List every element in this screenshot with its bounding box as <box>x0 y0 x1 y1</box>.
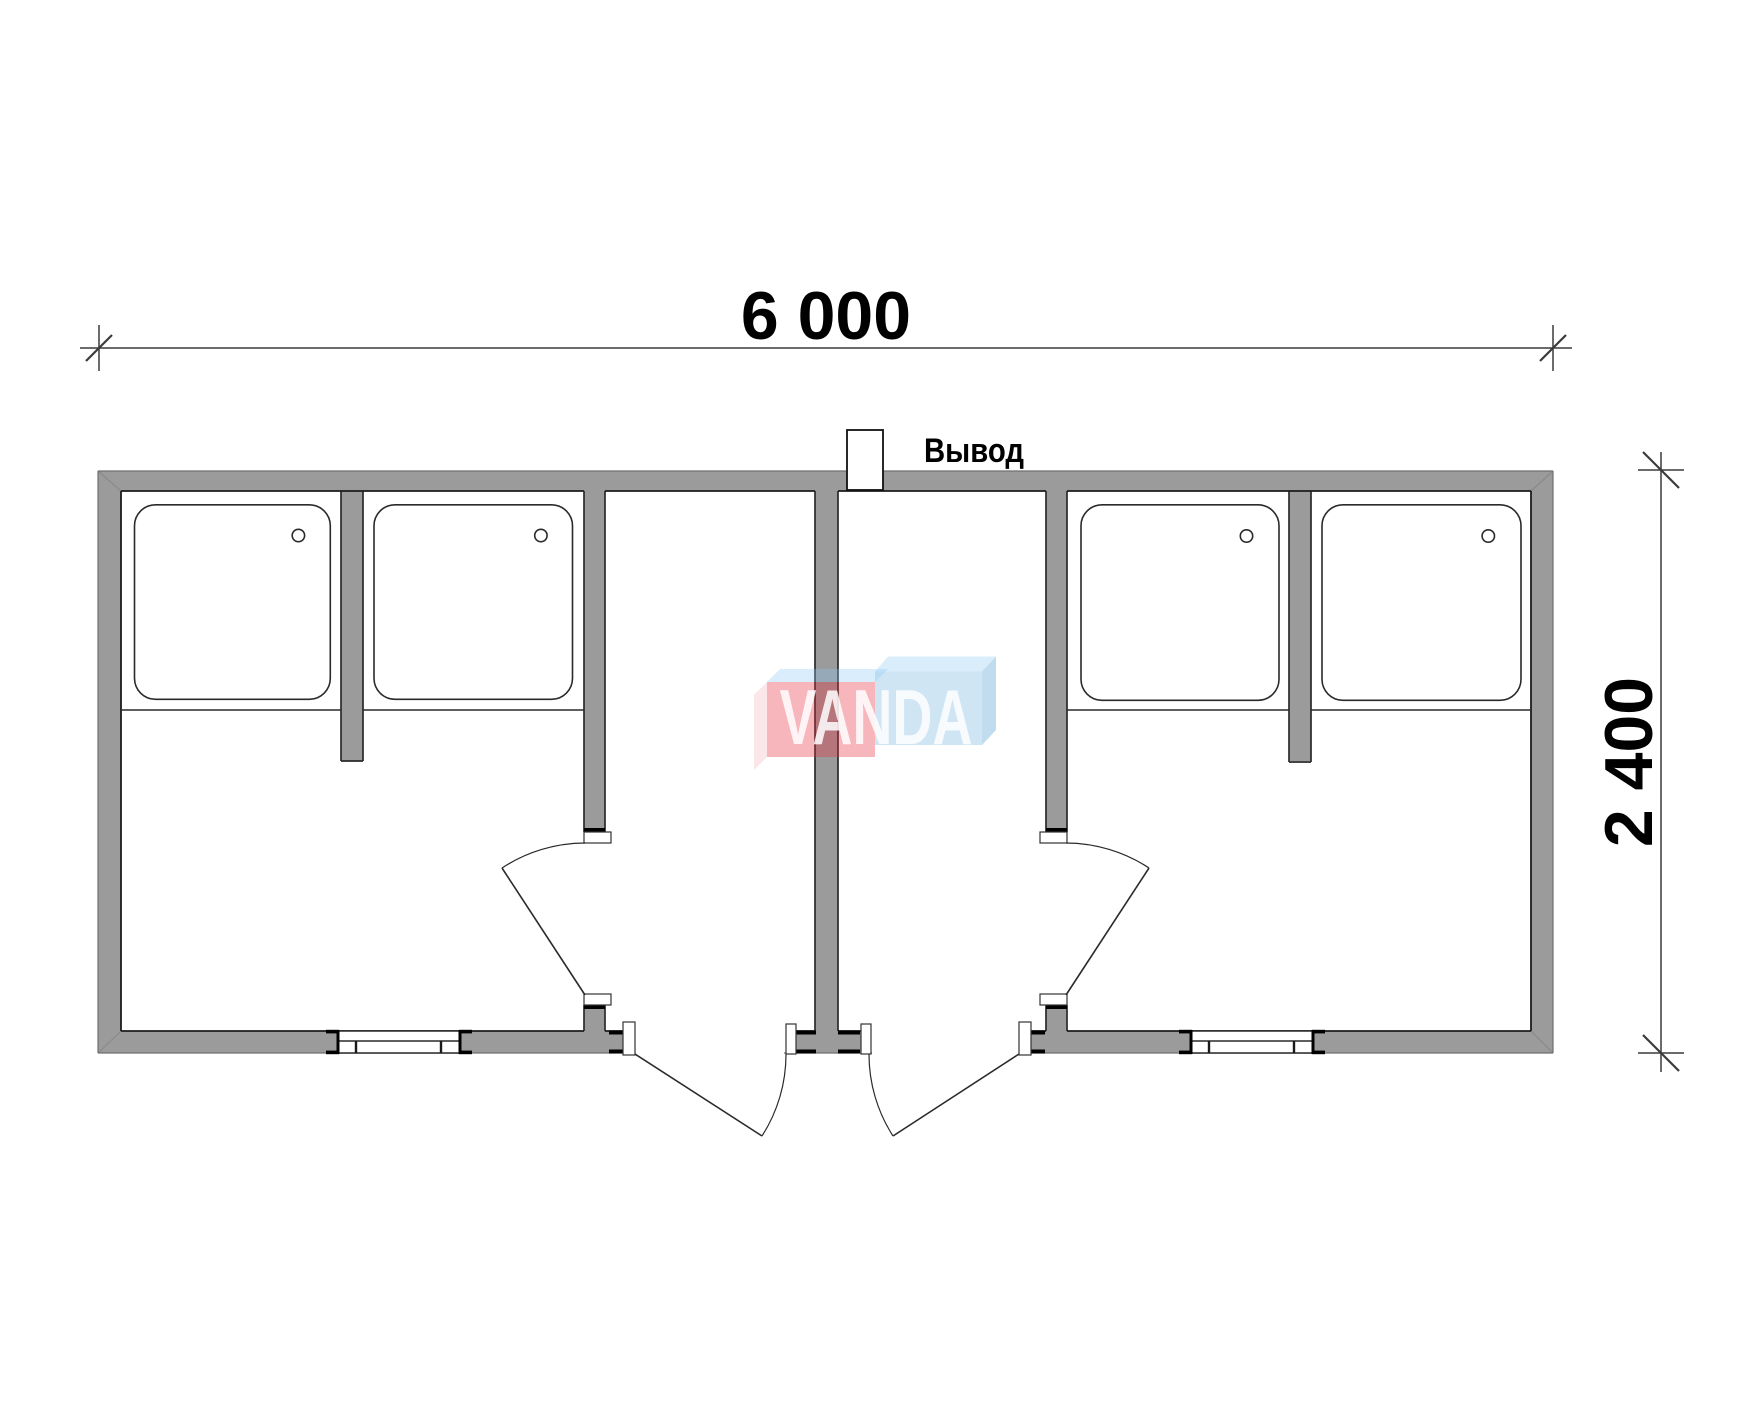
svg-text:6 000: 6 000 <box>741 278 911 354</box>
svg-text:Вывод: Вывод <box>924 432 1024 470</box>
svg-text:2 400: 2 400 <box>1591 677 1667 847</box>
svg-text:VANDA: VANDA <box>780 673 973 761</box>
